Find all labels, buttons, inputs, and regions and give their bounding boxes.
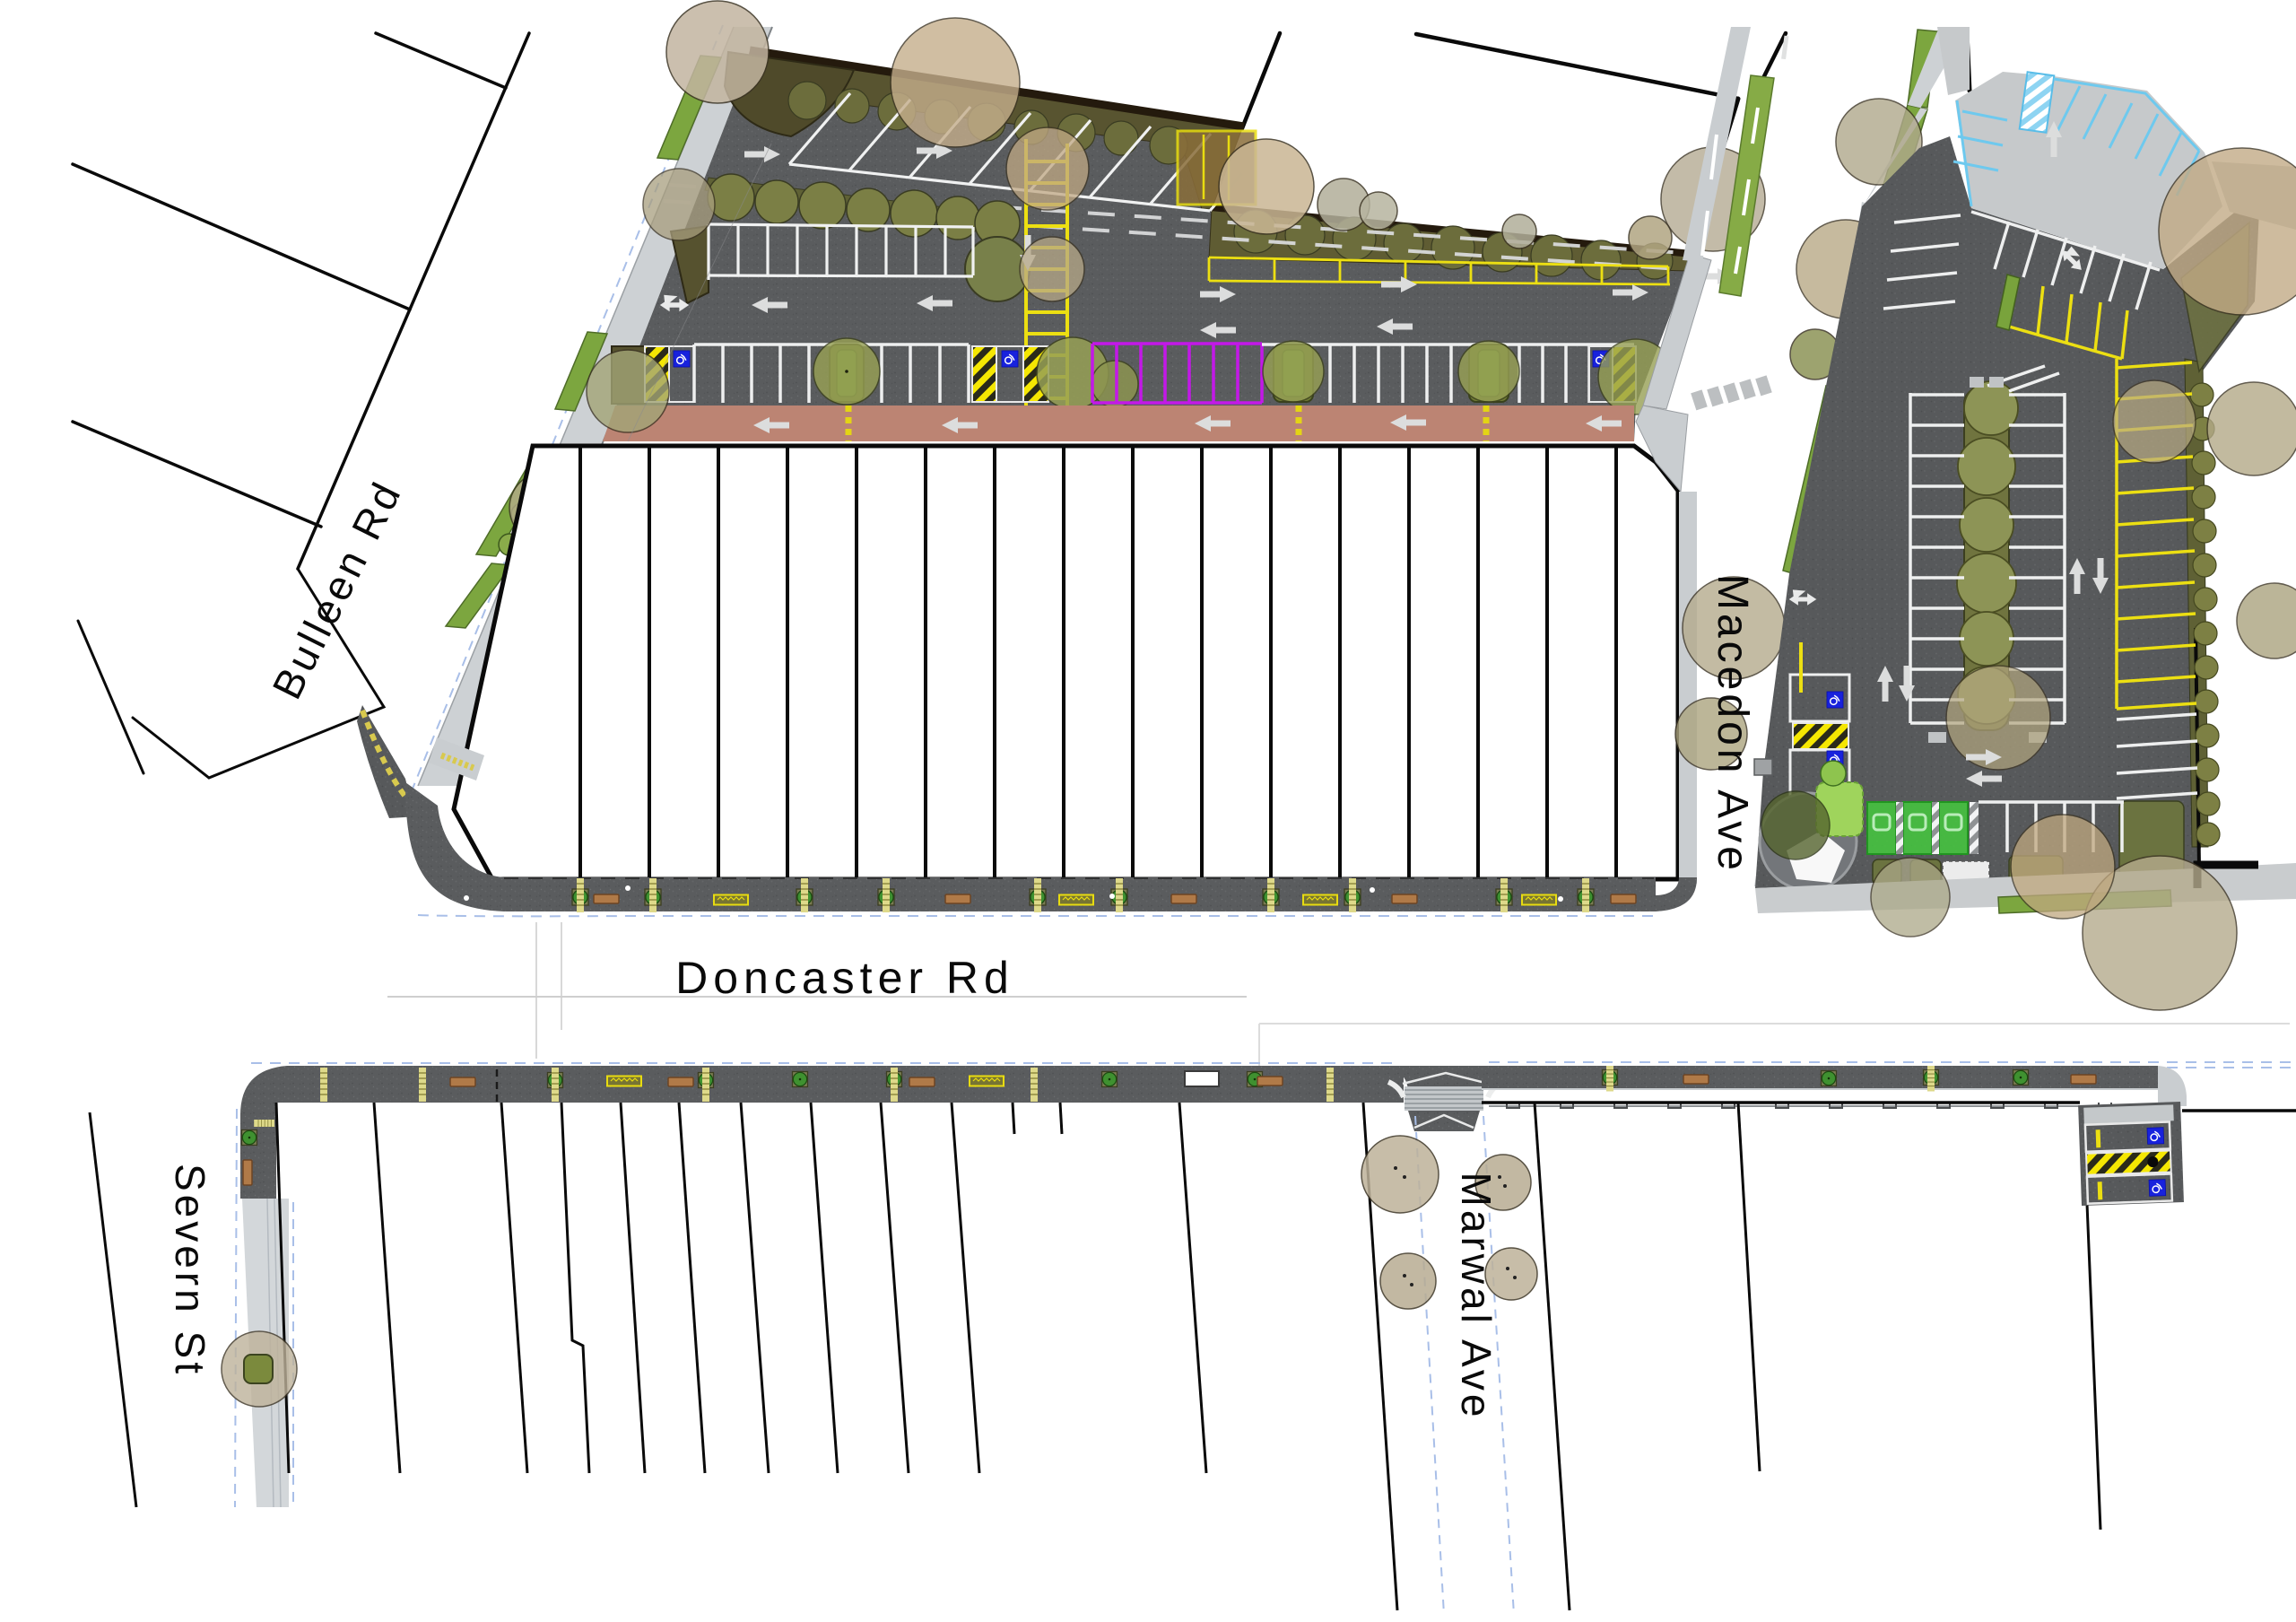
svg-text:Severn St: Severn St bbox=[167, 1164, 213, 1377]
svg-text:Marwal Ave: Marwal Ave bbox=[1453, 1173, 1500, 1421]
svg-text:Doncaster Rd: Doncaster Rd bbox=[675, 953, 1014, 1003]
svg-text:Macedon Ave: Macedon Ave bbox=[1709, 574, 1756, 874]
